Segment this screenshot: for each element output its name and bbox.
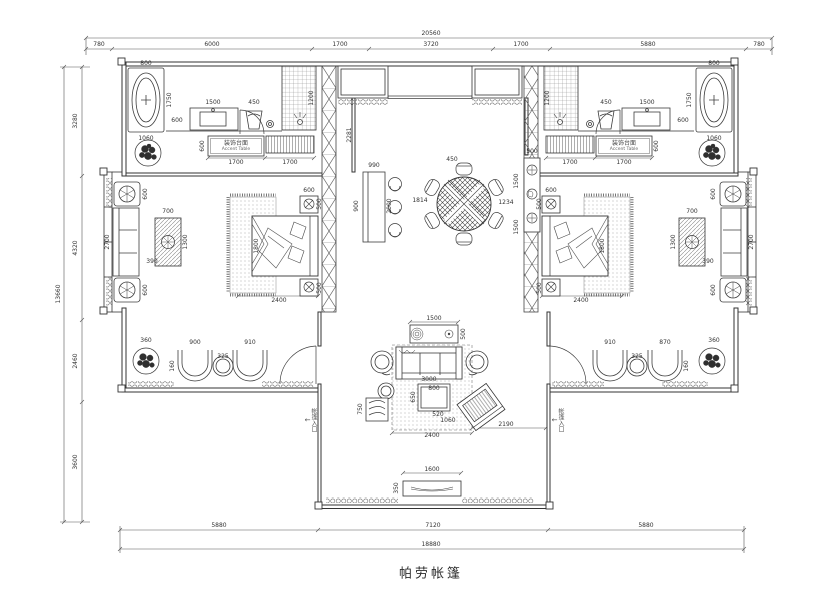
plant-bath-left: [135, 140, 161, 166]
wardrobes-top: [338, 66, 522, 98]
floor-plan-drawing: [0, 0, 837, 592]
vanity-right: [587, 108, 671, 130]
bay-sofa-left: [113, 182, 140, 302]
side-table-round: [378, 383, 394, 399]
living-coffee-table: [418, 384, 450, 411]
door-living-right: [550, 346, 586, 384]
bar-counter: [363, 172, 385, 242]
console-behind-sofa: [410, 325, 458, 343]
basket-chair-left: [366, 398, 388, 421]
dining-table: [437, 177, 491, 231]
curtains: [106, 99, 752, 503]
floorplan-canvas: 2056078060001700372017005880780136603280…: [0, 0, 837, 592]
bed-left: [228, 195, 318, 296]
shower-right: [544, 66, 578, 130]
living-sofa: [396, 347, 462, 379]
bathtub-right: [696, 68, 732, 132]
lounge-right: [593, 348, 725, 381]
console-right: [524, 158, 540, 232]
tv-console: [403, 481, 461, 496]
plant-bath-right: [699, 140, 725, 166]
door-living-left: [280, 346, 316, 384]
vanity-left: [190, 108, 274, 130]
accent-table-left: [208, 136, 314, 156]
coffee-table-bay-left: [155, 218, 181, 266]
accent-table-right: [546, 136, 652, 156]
bay-sofa-right: [720, 182, 747, 302]
lattice-screen-left: [322, 66, 336, 312]
bed-right: [542, 195, 632, 296]
shower-left: [282, 66, 316, 130]
lounge-left: [133, 348, 267, 381]
bar-stools: [389, 178, 402, 238]
coffee-table-bay-right: [679, 218, 705, 266]
bathtub-left: [128, 68, 164, 132]
